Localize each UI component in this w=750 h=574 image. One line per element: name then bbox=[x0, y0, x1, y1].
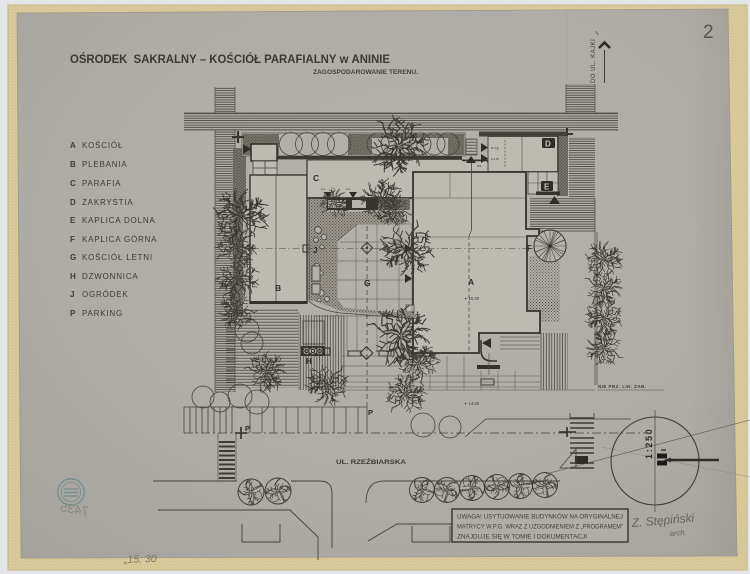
svg-text:OŚRODEK SAKRALNY – KOŚCIÓŁ PA: OŚRODEK SAKRALNY – KOŚCIÓŁ PARAFIALNY w … bbox=[70, 53, 390, 66]
svg-text:w.z.: w.z. bbox=[321, 187, 326, 191]
svg-text:w.z.: w.z. bbox=[346, 187, 351, 191]
svg-text:„15. 30: „15. 30 bbox=[123, 553, 157, 566]
svg-text:UL. RZEŹBIARSKA: UL. RZEŹBIARSKA bbox=[336, 457, 406, 466]
svg-text:F: F bbox=[527, 244, 532, 253]
svg-text:DZWONNICA: DZWONNICA bbox=[82, 272, 139, 281]
svg-text:KOŚCIÓŁ LETNI: KOŚCIÓŁ LETNI bbox=[82, 253, 153, 262]
svg-text:KAPLICA DOLNA: KAPLICA DOLNA bbox=[82, 216, 156, 225]
svg-text:F: F bbox=[70, 235, 76, 244]
svg-text:ZAGOSPODAROWANIE TERENU.: ZAGOSPODAROWANIE TERENU. bbox=[313, 69, 418, 76]
svg-text:H: H bbox=[70, 272, 77, 281]
svg-text:w z g: w z g bbox=[491, 146, 499, 150]
svg-text:G: G bbox=[70, 253, 77, 262]
svg-text:MATRYCY W.P.G. WRAZ Z UZGODNIE: MATRYCY W.P.G. WRAZ Z UZGODNIENIEM Z „PR… bbox=[457, 524, 623, 531]
svg-text:P: P bbox=[70, 309, 76, 318]
svg-text:2: 2 bbox=[703, 22, 714, 43]
svg-text:UWAGA! USYTUOWANIE BUDYNKÓW NA: UWAGA! USYTUOWANIE BUDYNKÓW NA ORYGINALN… bbox=[457, 512, 623, 521]
svg-text:ZAKRYSTIA: ZAKRYSTIA bbox=[82, 198, 134, 207]
svg-text:E: E bbox=[544, 183, 550, 192]
svg-text:PARKING: PARKING bbox=[82, 309, 123, 318]
svg-text:1:250: 1:250 bbox=[644, 428, 654, 460]
svg-text:D: D bbox=[545, 140, 551, 149]
svg-text:arch.: arch. bbox=[670, 528, 687, 538]
svg-text:ZNAJDUJE SIĘ W TOMIE I DOKUMEN: ZNAJDUJE SIĘ W TOMIE I DOKUMENTACJI bbox=[457, 534, 587, 541]
svg-text:NIE PRZ. LIN. ZAB.: NIE PRZ. LIN. ZAB. bbox=[598, 384, 647, 389]
svg-text:C: C bbox=[70, 179, 77, 188]
svg-text:B: B bbox=[70, 160, 77, 169]
svg-text:o z m: o z m bbox=[491, 157, 499, 161]
svg-text:E: E bbox=[70, 216, 76, 225]
svg-text:DO UL. KAJKI: DO UL. KAJKI bbox=[591, 39, 597, 83]
svg-text:G: G bbox=[364, 278, 371, 288]
svg-text:P: P bbox=[368, 408, 373, 417]
svg-text:A: A bbox=[468, 277, 474, 287]
svg-text:OGRÓDEK: OGRÓDEK bbox=[82, 290, 129, 299]
svg-text:wz.: wz. bbox=[477, 164, 482, 168]
svg-text:P: P bbox=[245, 424, 250, 433]
svg-text:PLEBANIA: PLEBANIA bbox=[82, 160, 128, 169]
svg-text:KAPLICA GÓRNA: KAPLICA GÓRNA bbox=[82, 235, 157, 244]
svg-text:B: B bbox=[275, 283, 281, 293]
svg-text:C: C bbox=[313, 173, 319, 183]
svg-text:J: J bbox=[313, 246, 317, 255]
svg-text:A: A bbox=[70, 141, 77, 150]
svg-text:D: D bbox=[70, 198, 77, 207]
svg-text:PARAFIA: PARAFIA bbox=[82, 179, 121, 188]
svg-text:✦ 14,00: ✦ 14,00 bbox=[464, 401, 480, 406]
svg-text:KOŚCIÓŁ: KOŚCIÓŁ bbox=[82, 141, 123, 150]
svg-text:J: J bbox=[70, 290, 75, 299]
svg-text:✦ 15,00: ✦ 15,00 bbox=[464, 296, 480, 301]
